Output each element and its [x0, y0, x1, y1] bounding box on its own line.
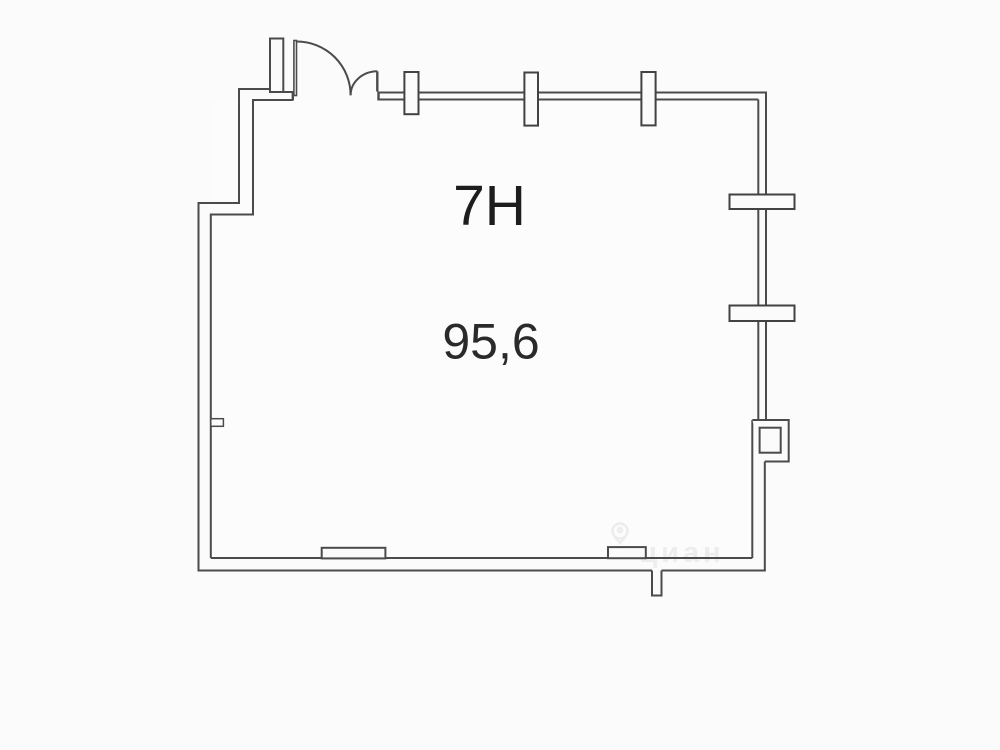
svg-text:циан: циан	[639, 537, 724, 569]
svg-text:95,6: 95,6	[442, 314, 539, 370]
svg-text:7Н: 7Н	[453, 174, 526, 238]
